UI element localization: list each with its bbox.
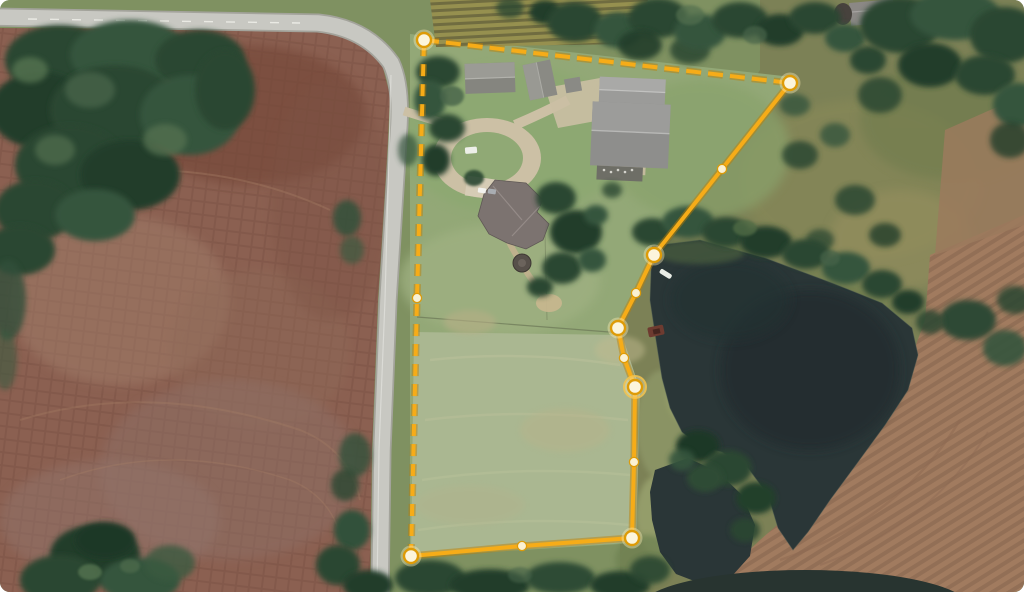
boundary-vertex-large bbox=[611, 321, 625, 335]
boundary-vertex-large bbox=[404, 549, 418, 563]
tree-blob bbox=[898, 43, 962, 87]
boundary-vertex-large bbox=[628, 380, 642, 394]
aerial-map-image bbox=[0, 0, 1024, 592]
tree-blob bbox=[730, 518, 760, 542]
tree-highlight bbox=[743, 26, 767, 44]
tree-highlight bbox=[733, 220, 757, 236]
aerial-photo-frame bbox=[0, 0, 1024, 592]
tree-blob bbox=[333, 200, 361, 236]
hay-patch bbox=[520, 408, 610, 452]
tree-blob bbox=[195, 50, 255, 130]
tree-blob bbox=[940, 300, 996, 340]
tree-blob bbox=[869, 223, 901, 247]
tree-blob bbox=[145, 545, 195, 581]
tree-blob bbox=[736, 482, 776, 514]
boundary-vertex-large bbox=[647, 248, 661, 262]
tree-blob bbox=[602, 182, 622, 198]
tree-highlight bbox=[65, 72, 115, 108]
tree-blob bbox=[630, 556, 670, 584]
tree-blob bbox=[780, 94, 810, 116]
white-dot bbox=[617, 169, 620, 172]
boundary-vertex-large bbox=[417, 33, 431, 47]
tree-blob bbox=[858, 77, 902, 113]
driveway-loop-island bbox=[451, 132, 523, 184]
tree-highlight bbox=[508, 567, 532, 583]
tree-blob bbox=[782, 141, 818, 169]
boundary-vertex-small bbox=[717, 164, 726, 173]
tree-blob bbox=[422, 144, 450, 176]
soil-patch-dark bbox=[270, 80, 390, 320]
tree-blob bbox=[527, 277, 553, 297]
barn-roof-sunlit-slope bbox=[464, 62, 514, 79]
dirt-patch bbox=[444, 310, 496, 334]
boundary-vertex-large bbox=[625, 531, 639, 545]
white-dot bbox=[610, 171, 613, 174]
tree-highlight bbox=[12, 57, 48, 83]
tree-blob bbox=[850, 46, 886, 74]
boundary-vertex-small bbox=[629, 457, 638, 466]
tree-highlight bbox=[78, 564, 102, 580]
tree-blob bbox=[547, 2, 603, 42]
barn-annex bbox=[596, 166, 643, 182]
white-dot bbox=[631, 169, 634, 172]
tree-blob bbox=[618, 30, 662, 60]
tree-highlight bbox=[143, 124, 187, 156]
tree-blob bbox=[578, 248, 606, 272]
tree-blob bbox=[669, 449, 695, 471]
hay-patch bbox=[415, 485, 525, 525]
shed-small bbox=[564, 77, 582, 94]
boundary-vertex-small bbox=[517, 541, 526, 550]
tree-blob bbox=[536, 182, 576, 214]
white-dot bbox=[624, 171, 627, 174]
tree-blob bbox=[916, 310, 944, 334]
tree-blob bbox=[820, 123, 850, 147]
tree-blob bbox=[687, 464, 723, 492]
tree-blob bbox=[340, 236, 364, 264]
tree-blob bbox=[464, 170, 484, 186]
tree-highlight bbox=[440, 86, 464, 106]
gazebo-roof-top bbox=[518, 259, 526, 267]
boundary-vertex-small bbox=[412, 293, 421, 302]
tree-blob bbox=[584, 205, 608, 225]
boundary-vertex-small bbox=[631, 288, 640, 297]
tree-blob bbox=[75, 522, 135, 558]
pond-deep-tone bbox=[670, 260, 790, 340]
boundary-vertex-small bbox=[619, 353, 628, 362]
tree-highlight bbox=[120, 559, 140, 573]
tree-blob bbox=[892, 290, 924, 314]
boundary-vertex-large bbox=[783, 76, 797, 90]
tree-blob bbox=[862, 270, 902, 298]
tree-highlight bbox=[820, 250, 840, 266]
white-dot bbox=[603, 169, 606, 172]
tree-highlight bbox=[35, 135, 75, 165]
tree-blob bbox=[398, 134, 418, 166]
car-white-loop bbox=[465, 146, 478, 154]
big-barn-lower-slope bbox=[592, 101, 671, 133]
tree-blob bbox=[429, 114, 465, 142]
big-barn bbox=[589, 76, 671, 182]
tree-blob bbox=[334, 510, 370, 550]
tree-blob bbox=[331, 469, 359, 501]
tree-blob bbox=[835, 185, 875, 215]
tree-blob bbox=[825, 24, 865, 52]
barn-west bbox=[464, 62, 515, 94]
tree-blob bbox=[55, 189, 135, 241]
tree-highlight bbox=[676, 5, 704, 25]
